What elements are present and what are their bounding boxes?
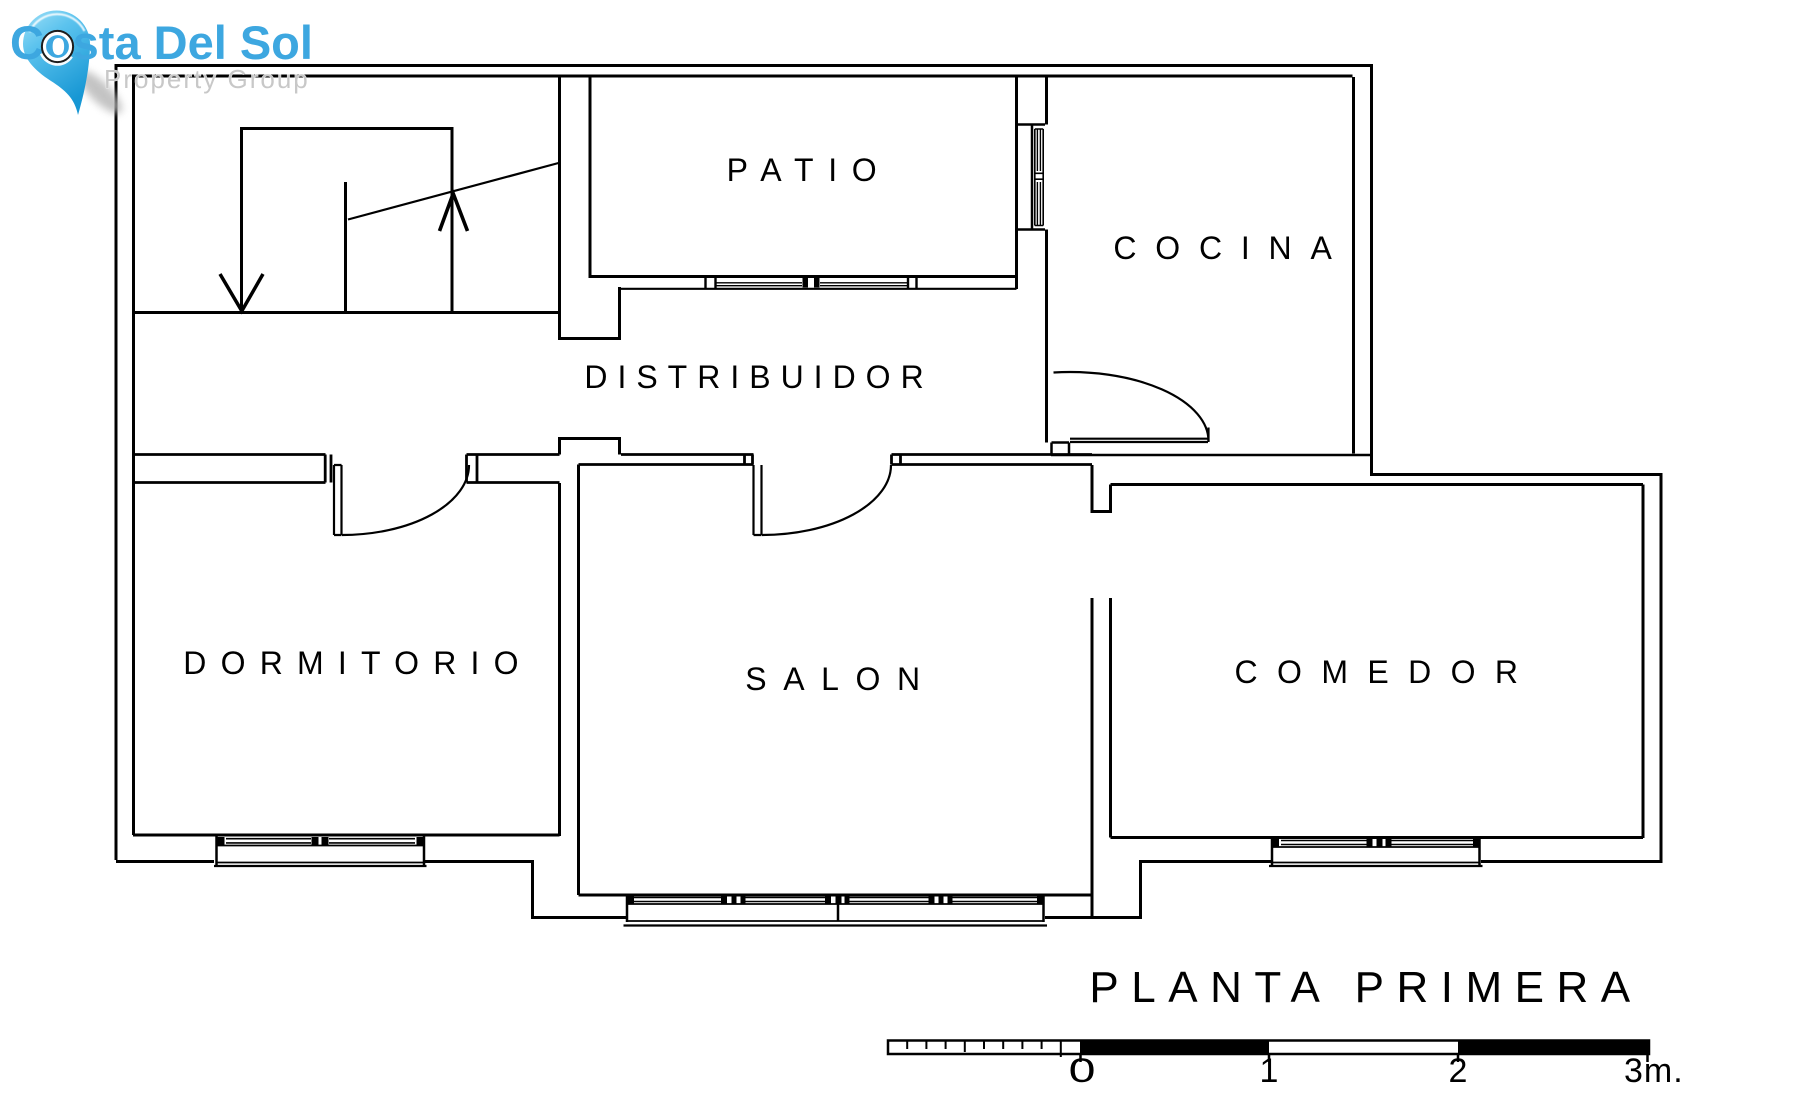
svg-text:COMEDOR: COMEDOR [1235, 654, 1538, 690]
svg-text:DISTRIBUIDOR: DISTRIBUIDOR [584, 359, 933, 395]
svg-text:2: 2 [1449, 1052, 1468, 1090]
svg-text:3m.: 3m. [1624, 1052, 1684, 1090]
svg-text:COCINA: COCINA [1113, 230, 1350, 266]
svg-text:PLANTA PRIMERA: PLANTA PRIMERA [1089, 963, 1642, 1012]
svg-text:SALON: SALON [745, 661, 936, 697]
svg-text:DORMITORIO: DORMITORIO [183, 645, 532, 681]
svg-text:1: 1 [1260, 1052, 1279, 1090]
svg-text:Property Group: Property Group [104, 64, 310, 94]
svg-text:0: 0 [1069, 1051, 1096, 1089]
svg-text:PATIO: PATIO [727, 152, 892, 188]
